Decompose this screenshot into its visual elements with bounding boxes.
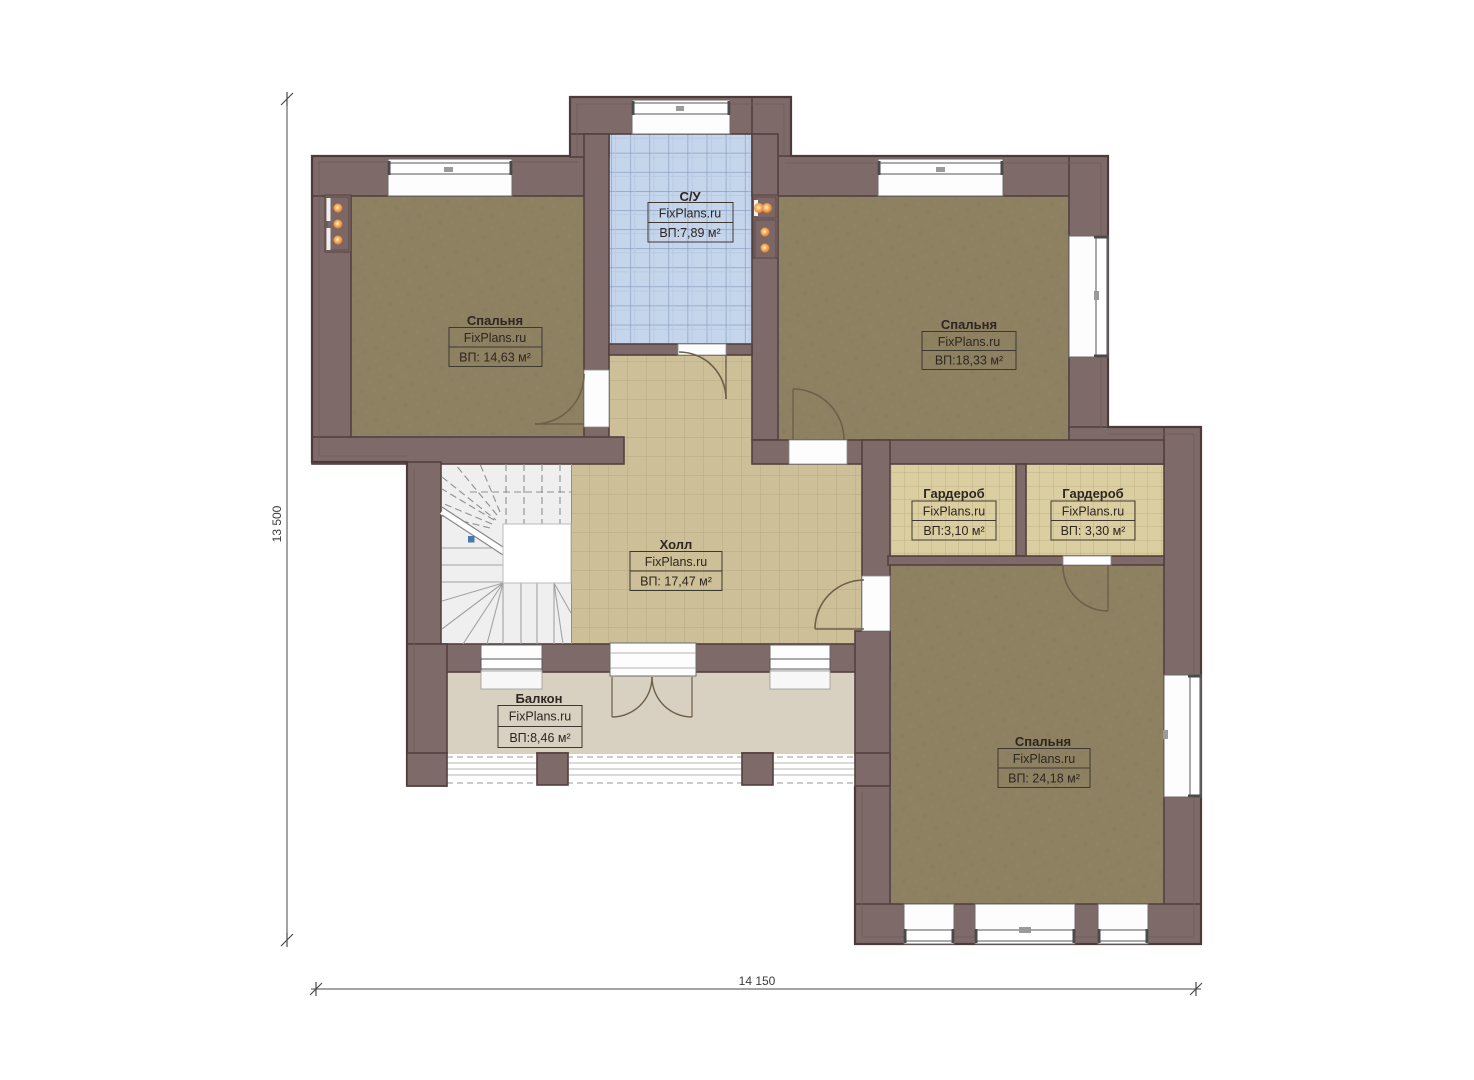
svg-text:ВП: 24,18 м²: ВП: 24,18 м² (1008, 772, 1080, 786)
svg-text:Спальня: Спальня (941, 317, 997, 332)
svg-text:FixPlans.ru: FixPlans.ru (509, 710, 572, 724)
svg-text:ВП: 14,63 м²: ВП: 14,63 м² (459, 351, 531, 365)
svg-text:Гардероб: Гардероб (923, 486, 984, 501)
svg-text:FixPlans.ru: FixPlans.ru (1013, 752, 1076, 766)
svg-text:С/У: С/У (679, 189, 701, 204)
svg-text:Гардероб: Гардероб (1062, 486, 1123, 501)
svg-text:ВП:3,10 м²: ВП:3,10 м² (923, 524, 984, 538)
svg-text:FixPlans.ru: FixPlans.ru (659, 207, 722, 221)
svg-text:FixPlans.ru: FixPlans.ru (464, 331, 527, 345)
svg-text:Спальня: Спальня (467, 313, 523, 328)
svg-text:FixPlans.ru: FixPlans.ru (645, 555, 708, 569)
svg-text:Спальня: Спальня (1015, 734, 1071, 749)
svg-text:FixPlans.ru: FixPlans.ru (938, 335, 1001, 349)
svg-text:FixPlans.ru: FixPlans.ru (1062, 505, 1125, 519)
svg-text:ВП: 17,47 м²: ВП: 17,47 м² (640, 575, 712, 589)
svg-text:ВП:8,46 м²: ВП:8,46 м² (509, 731, 570, 745)
svg-text:FixPlans.ru: FixPlans.ru (923, 505, 986, 519)
svg-text:14 150: 14 150 (739, 974, 776, 988)
svg-text:13 500: 13 500 (270, 505, 284, 542)
svg-text:Балкон: Балкон (516, 691, 563, 706)
svg-text:Холл: Холл (660, 537, 693, 552)
svg-text:ВП:18,33 м²: ВП:18,33 м² (935, 354, 1003, 368)
svg-text:ВП: 3,30 м²: ВП: 3,30 м² (1061, 524, 1126, 538)
svg-text:ВП:7,89 м²: ВП:7,89 м² (659, 226, 720, 240)
